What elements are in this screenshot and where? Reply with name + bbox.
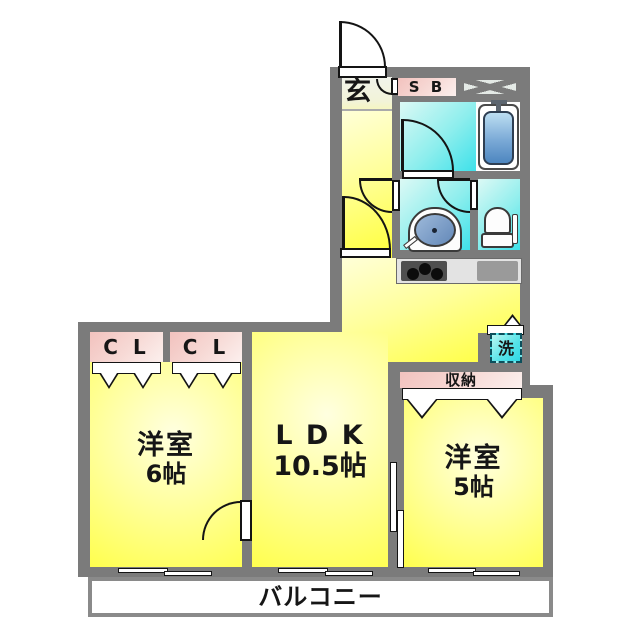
storage-closet: 収納 bbox=[400, 372, 522, 388]
ldk-size: 10.5帖 bbox=[252, 451, 388, 482]
bathtub bbox=[483, 111, 514, 165]
laundry-space: 洗 bbox=[490, 333, 522, 363]
room6-label: 洋室 6帖 bbox=[100, 430, 232, 489]
washroom-door-leaf bbox=[359, 178, 392, 181]
toilet-control-panel bbox=[512, 214, 518, 244]
kitchen-sink bbox=[477, 261, 518, 281]
entrance-door-leaf bbox=[339, 21, 342, 67]
wall-rooms-top bbox=[78, 322, 342, 332]
wall-room5-right bbox=[543, 385, 553, 577]
ldk-window bbox=[278, 568, 328, 573]
floor-plan: S B 洗 C L C L 収納 bbox=[0, 0, 640, 640]
washbasin-drain bbox=[432, 228, 437, 233]
genkan-label: 玄 bbox=[344, 76, 384, 107]
toilet-door-opening bbox=[470, 180, 478, 210]
room5-size: 5帖 bbox=[410, 474, 537, 502]
ldk-label: L D K 10.5帖 bbox=[252, 420, 388, 482]
closet-1-folding-door bbox=[92, 362, 161, 374]
room5-window bbox=[428, 568, 476, 573]
toilet-door-leaf bbox=[437, 178, 470, 181]
closet-1: C L bbox=[90, 332, 163, 362]
toilet-base bbox=[481, 233, 514, 248]
entrance-door-swing-arc bbox=[340, 21, 386, 67]
room5-window bbox=[473, 571, 520, 576]
closet-2-folding-door bbox=[172, 362, 241, 374]
room5-name: 洋室 bbox=[410, 443, 537, 474]
shoe-box: S B bbox=[398, 78, 456, 96]
room5-label: 洋室 5帖 bbox=[410, 443, 537, 502]
stove-burner-icon bbox=[419, 263, 431, 275]
ldk-window bbox=[325, 571, 373, 576]
balcony-label: バルコニー bbox=[92, 581, 549, 614]
pipe-space-x-box bbox=[462, 78, 518, 96]
room6-window bbox=[118, 568, 168, 573]
stove bbox=[401, 261, 447, 281]
wall-laundry-left bbox=[478, 333, 490, 363]
room6-door-opening bbox=[240, 500, 252, 541]
closet-2: C L bbox=[170, 332, 242, 362]
balcony: バルコニー bbox=[88, 577, 553, 617]
room6-window bbox=[164, 571, 212, 576]
wall-left-outer bbox=[78, 322, 90, 577]
sliding-door-panel bbox=[390, 462, 397, 532]
shower-stem-icon bbox=[496, 104, 501, 111]
ldk-name: L D K bbox=[252, 420, 388, 451]
sliding-door-panel bbox=[397, 510, 404, 568]
ldk-door-leaf bbox=[342, 196, 345, 250]
room6-name: 洋室 bbox=[100, 430, 232, 461]
washroom-door-opening bbox=[392, 180, 400, 211]
room6-size: 6帖 bbox=[100, 461, 232, 489]
wall-closet-divider bbox=[163, 332, 170, 362]
stove-burner-icon bbox=[407, 268, 419, 280]
stove-burner-icon bbox=[431, 268, 443, 280]
bathroom-door-leaf bbox=[401, 119, 404, 171]
storage-folding-door bbox=[402, 388, 522, 400]
toilet-lid bbox=[484, 207, 511, 234]
wall-hall-left bbox=[330, 67, 342, 332]
